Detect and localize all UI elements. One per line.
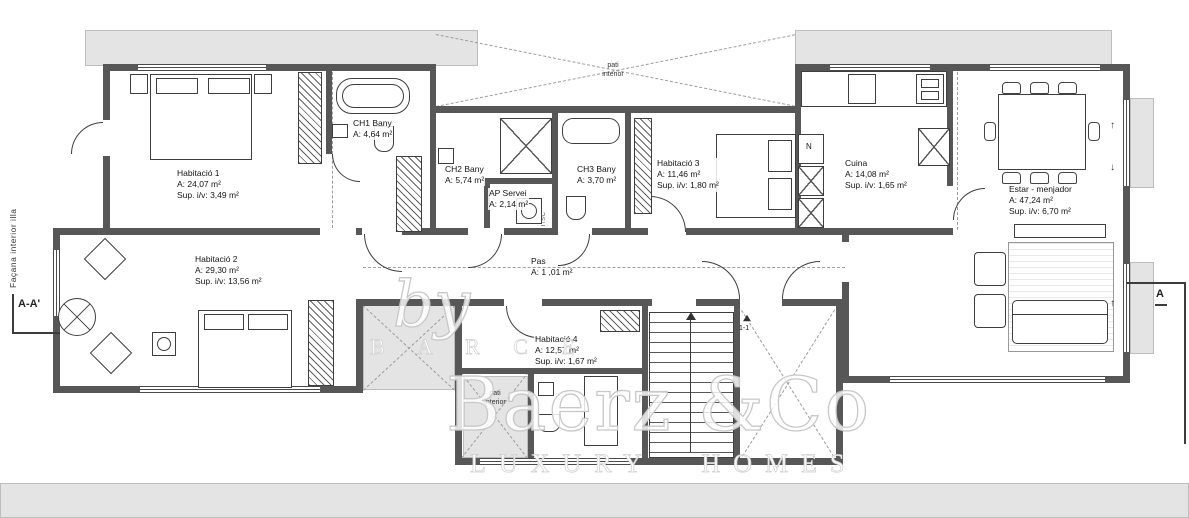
room-name: Pas (531, 256, 573, 267)
arrow-down-icon: ↓ (1110, 162, 1115, 173)
pillow (156, 78, 198, 94)
wall (842, 234, 849, 242)
section-line (12, 332, 60, 334)
chair (1002, 82, 1021, 94)
chair (1030, 82, 1049, 94)
door-opening (504, 299, 542, 306)
wardrobe (600, 310, 640, 332)
sink (332, 124, 348, 138)
stair-section-arrow (743, 315, 751, 321)
room-name: AP Servei (489, 188, 528, 199)
balcony-right-upper (1130, 98, 1154, 188)
room-area: A: 5,74 m² (445, 175, 484, 186)
kitchen-sink-basin (921, 79, 939, 88)
room-area: A: 1 ,01 m² (531, 267, 573, 278)
stair-direction-arrow (686, 312, 696, 320)
nightstand (254, 74, 272, 94)
armchair (84, 238, 126, 280)
section-line (12, 294, 14, 334)
wall (484, 178, 554, 184)
nightstand (130, 74, 148, 94)
bathtub (562, 118, 620, 144)
wall (356, 299, 363, 393)
sidewalk-band-bottom (0, 483, 1189, 518)
room-name: CH2 Bany (445, 164, 484, 175)
wall (552, 113, 558, 234)
wardrobe (396, 156, 422, 232)
section-line (1184, 284, 1186, 444)
round-table (58, 298, 96, 336)
room-label-ch1-bany: CH1 Bany A: 4,64 m² (352, 118, 393, 140)
room-name: Habitació 1 (177, 168, 239, 179)
watermark-tagline: LUXURY HOMES (470, 449, 857, 479)
wall (430, 106, 800, 113)
dining-table (998, 94, 1086, 170)
room-supiv: Sup. i/v: 1,80 m² (657, 180, 719, 191)
wall (625, 113, 631, 234)
shaft-label: RT/SC (541, 186, 547, 232)
chair (1058, 82, 1077, 94)
patio-top-label: pati interior (588, 62, 638, 80)
room-area: A: 3,70 m² (577, 175, 616, 186)
section-marker-left: A-A' (18, 298, 40, 310)
tall-cabinet (798, 166, 824, 196)
sidewalk-band-top-left (85, 30, 478, 66)
sidewalk-band-top-right (795, 30, 1112, 66)
bathtub-inner (342, 84, 404, 108)
ceiling-dashed-line (332, 72, 333, 228)
room-area: A: 29,30 m² (195, 265, 262, 276)
room-area: A: 4,64 m² (353, 129, 392, 140)
chair (1002, 172, 1021, 184)
section-marker-right: A (1156, 288, 1164, 300)
sideboard (1014, 224, 1106, 238)
window (138, 64, 266, 71)
wardrobe (308, 300, 334, 386)
room-label-ch2-bany: CH2 Bany A: 5,74 m² (444, 164, 485, 186)
room-area: A: 47,24 m² (1009, 195, 1072, 206)
pillow (768, 140, 792, 172)
room-area: A: 11,46 m² (657, 169, 719, 180)
wall (947, 64, 953, 186)
room-area: A: 14,08 m² (845, 169, 907, 180)
section-line (1126, 282, 1186, 284)
chair (1088, 122, 1100, 141)
wall (430, 64, 436, 113)
room-label-ap-servei: AP Servei A: 2,14 m² (488, 188, 529, 210)
sink (438, 148, 454, 164)
wardrobe (298, 72, 322, 164)
pillow (204, 314, 244, 330)
door-opening (652, 299, 696, 306)
window (53, 250, 60, 316)
window (1123, 264, 1130, 352)
pillow (208, 78, 250, 94)
toilet (566, 196, 586, 220)
window (830, 64, 930, 71)
door-opening (740, 299, 782, 306)
shower (500, 118, 552, 174)
watermark-brand: Baerz &Co (446, 362, 871, 448)
room-name: Habitació 3 (657, 158, 719, 169)
patio-label-line: interior (588, 71, 638, 80)
door-opening (320, 228, 356, 235)
room-supiv: Sup. i/v: 3,49 m² (177, 190, 239, 201)
patio-label-line: pati (588, 62, 638, 71)
room-label-habitacio-1: Habitació 1 A: 24,07 m² Sup. i/v: 3,49 m… (176, 168, 240, 202)
room-label-estar-menjador: Estar - menjador A: 47,24 m² Sup. i/v: 6… (1008, 184, 1073, 218)
room-label-habitacio-3: Habitació 3 A: 11,46 m² Sup. i/v: 1,80 m… (656, 158, 720, 192)
pillow (768, 178, 792, 210)
window (890, 376, 1105, 383)
balcony-right-lower (1130, 262, 1154, 354)
floor-plan: RT/SC N ↑ ↓ ↑ Façana int (0, 0, 1189, 518)
tall-cabinet (918, 128, 950, 166)
room-label-cuina: Cuina A: 14,08 m² Sup. i/v: 1,65 m² (844, 158, 908, 192)
pillow (248, 314, 288, 330)
lamp (157, 337, 171, 351)
section-line (1155, 304, 1167, 306)
room-label-habitacio-2: Habitació 2 A: 29,30 m² Sup. i/v: 13,56 … (194, 254, 263, 288)
door-opening (103, 120, 110, 156)
room-name: Cuina (845, 158, 907, 169)
sofa-cushion-line (1012, 314, 1108, 315)
room-label-pas: Pas A: 1 ,01 m² (530, 256, 574, 278)
kitchen-sink-basin (921, 91, 939, 100)
tall-cabinet (798, 198, 824, 228)
chair (984, 122, 996, 141)
stair-section-label: 1-1 (738, 324, 750, 333)
cabinet-label: N (805, 142, 813, 153)
door-arc (468, 234, 502, 268)
room-label-ch3-bany: CH3 Bany A: 3,70 m² (576, 164, 617, 186)
room-name: CH1 Bany (353, 118, 392, 129)
room-area: A: 24,07 m² (177, 179, 239, 190)
room-supiv: Sup. i/v: 13,56 m² (195, 276, 262, 287)
room-supiv: Sup. i/v: 1,65 m² (845, 180, 907, 191)
facade-label: Façana interior illa (8, 178, 18, 288)
window (1123, 100, 1130, 186)
room-name: CH3 Bany (577, 164, 616, 175)
room-supiv: Sup. i/v: 6,70 m² (1009, 206, 1072, 217)
watermark-partner: B A R C E (370, 334, 589, 360)
armchair (974, 252, 1006, 286)
wall (326, 70, 332, 154)
sofa (1012, 300, 1108, 344)
window (990, 64, 1100, 71)
cooktop (848, 74, 876, 104)
room-name: Estar - menjador (1009, 184, 1072, 195)
watermark-by: by (393, 268, 470, 342)
room-area: A: 2,14 m² (489, 199, 528, 210)
arrow-up-icon: ↑ (1110, 120, 1115, 131)
armchair (974, 294, 1006, 328)
arrow-up-icon: ↑ (1110, 298, 1115, 309)
door-arc (332, 154, 360, 182)
wall (430, 113, 436, 234)
chair (1030, 172, 1049, 184)
room-name: Habitació 2 (195, 254, 262, 265)
door-arc (71, 122, 103, 154)
wardrobe (634, 118, 652, 214)
armchair (90, 332, 132, 374)
door-arc (650, 196, 686, 232)
chair (1058, 172, 1077, 184)
